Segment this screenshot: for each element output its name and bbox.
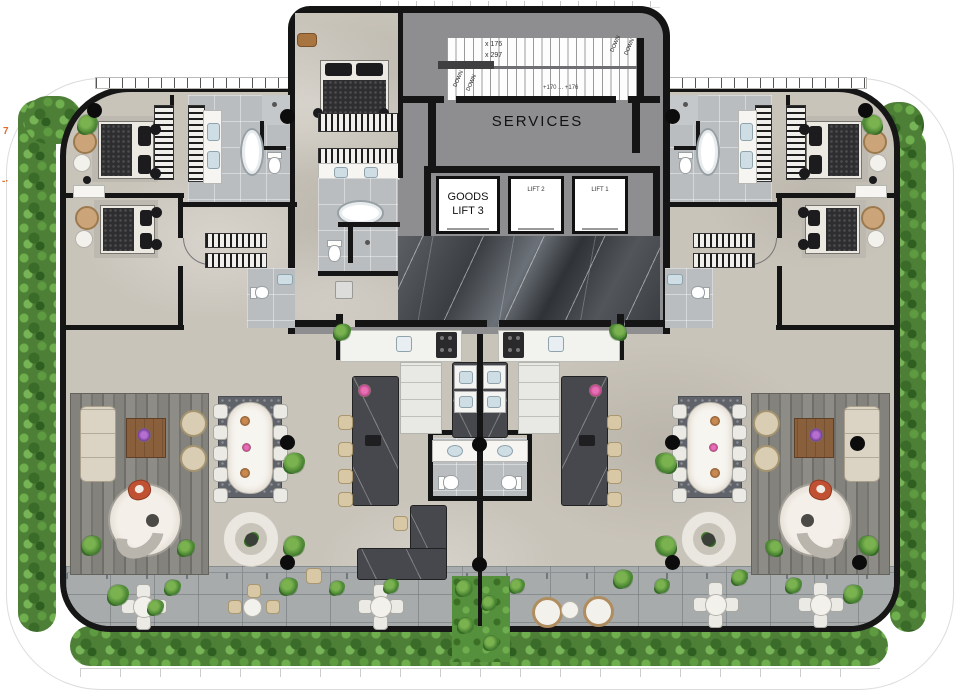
terrace-plant <box>655 579 669 593</box>
structural-column <box>665 555 680 570</box>
island-stool <box>338 442 353 457</box>
toilet <box>679 157 692 174</box>
bathtub <box>696 128 720 176</box>
table-flowers <box>242 443 251 452</box>
lounger-side-table <box>561 601 579 619</box>
structural-column <box>850 436 865 451</box>
bedside-table <box>798 239 809 250</box>
outdoor-bar-counter <box>357 548 447 580</box>
table-flowers <box>240 468 250 478</box>
dining-chair <box>732 425 747 440</box>
toilet <box>443 475 459 490</box>
terrace-plant <box>384 579 398 593</box>
island-stool <box>607 442 622 457</box>
terrace-plant <box>148 600 163 615</box>
terrace-plant <box>108 585 128 605</box>
terrace-seating-set <box>798 582 842 626</box>
party-wall <box>477 334 483 570</box>
kitchen-range <box>503 332 524 358</box>
desk-chair <box>869 176 877 184</box>
side-table <box>73 154 91 172</box>
shower-head <box>272 102 277 107</box>
floor-plan: x 176 x 297 +170 ... +176 DOWN DOWN DOWN… <box>0 0 960 696</box>
tall-cabinets <box>518 362 560 434</box>
powder-vanity <box>482 440 528 462</box>
dining-chair <box>672 488 687 503</box>
outdoor-bar-counter <box>410 505 447 553</box>
apartment-unit-right <box>478 88 898 628</box>
kitchen-island <box>561 376 608 506</box>
kitchen-sink <box>548 336 564 352</box>
terrace-plant <box>510 579 524 593</box>
table-flowers <box>240 416 250 426</box>
terrace-plant <box>280 578 297 595</box>
island-stool <box>338 469 353 484</box>
dining-chair <box>213 446 228 461</box>
terrace-plant <box>614 570 632 588</box>
dimension-line <box>80 668 880 677</box>
entry-bench <box>297 33 317 47</box>
wet-kitchen-cabinets <box>452 362 479 438</box>
side-table <box>869 154 887 172</box>
structural-column <box>280 555 295 570</box>
sofa <box>80 406 116 482</box>
party-wall-terrace <box>478 570 482 626</box>
toilet <box>268 157 281 174</box>
bedside-table <box>151 207 162 218</box>
walk-in-closet <box>205 253 267 268</box>
structural-column <box>472 437 487 452</box>
island-flowers <box>358 384 371 397</box>
structural-column <box>858 103 873 118</box>
margin-note: 7 <box>3 126 9 137</box>
potted-plant <box>178 540 194 556</box>
potted-plant <box>656 453 676 473</box>
bistro-chair <box>266 600 280 614</box>
bistro-chair <box>247 584 261 598</box>
table-flowers <box>710 416 720 426</box>
island-stool <box>607 469 622 484</box>
terrace-plant <box>786 578 801 593</box>
dining-chair <box>273 488 288 503</box>
structural-column <box>280 109 295 124</box>
potted-plant <box>284 536 304 556</box>
kitchen-range <box>436 332 457 358</box>
kitchen-island <box>352 376 399 506</box>
bedside-table <box>799 124 810 135</box>
double-vanity <box>203 110 222 184</box>
bedroom-armchair <box>861 206 885 230</box>
potted-plant <box>284 453 304 473</box>
terrace-plant <box>165 580 180 595</box>
coffee-table-flowers <box>137 428 151 442</box>
dining-chair <box>273 404 288 419</box>
bedroom-armchair <box>75 206 99 230</box>
bed <box>805 205 860 254</box>
lounge-armchair <box>180 410 207 437</box>
bed <box>806 121 862 179</box>
walk-in-closet <box>205 233 267 248</box>
dining-chair <box>213 404 228 419</box>
terrace-plant <box>330 581 344 595</box>
garden-strip-plant <box>482 596 496 610</box>
shower-head <box>683 102 688 107</box>
dining-chair <box>213 425 228 440</box>
bedside-table <box>798 207 809 218</box>
basin <box>667 274 683 285</box>
side-table <box>867 230 885 248</box>
double-vanity <box>738 110 757 184</box>
kitchen-sink <box>396 336 412 352</box>
bedside-table <box>150 124 161 135</box>
tall-cabinets <box>400 362 442 434</box>
center-planter <box>245 533 258 546</box>
dining-chair <box>732 488 747 503</box>
bed <box>100 205 155 254</box>
lounge-armchair <box>753 445 780 472</box>
desk <box>73 185 105 198</box>
structural-column <box>87 103 102 118</box>
desk <box>855 185 887 198</box>
bistro-chair <box>228 600 242 614</box>
island-stool <box>338 492 353 507</box>
round-lounger <box>532 597 563 628</box>
dining-chair <box>672 404 687 419</box>
wet-kitchen-cabinets <box>481 362 508 438</box>
bedside-table <box>150 168 161 179</box>
structural-column <box>280 435 295 450</box>
basin <box>277 274 293 285</box>
center-planter <box>702 533 715 546</box>
margin-note: -· <box>2 176 9 187</box>
structural-column <box>665 435 680 450</box>
potted-plant <box>859 536 878 555</box>
structural-column <box>665 109 680 124</box>
dining-chair <box>732 404 747 419</box>
structural-column <box>852 555 867 570</box>
table-flowers <box>710 468 720 478</box>
bedside-table <box>151 239 162 250</box>
desk-chair <box>83 176 91 184</box>
garden-strip-plant <box>456 580 472 596</box>
bed <box>98 121 154 179</box>
potted-plant <box>610 324 626 340</box>
hedge-left <box>18 100 56 632</box>
potted-plant <box>766 540 782 556</box>
dining-chair <box>213 488 228 503</box>
walk-in-closet <box>693 233 755 248</box>
island-flowers <box>589 384 602 397</box>
lounge-armchair <box>753 410 780 437</box>
structural-column <box>472 557 487 572</box>
coffee-table-flowers <box>809 428 823 442</box>
bistro-table <box>243 598 262 617</box>
dining-chair <box>732 467 747 482</box>
toilet <box>501 475 517 490</box>
stair-note: x 176 <box>485 41 502 48</box>
toilet <box>255 286 269 299</box>
terrace-plant <box>844 585 862 603</box>
bar-stool <box>393 516 408 531</box>
bedside-table <box>799 168 810 179</box>
walk-in-closet <box>693 253 755 268</box>
terrace-seating-set <box>693 582 737 626</box>
terrace-plant <box>732 570 747 585</box>
garden-strip-plant <box>458 618 473 633</box>
potted-plant <box>82 536 101 555</box>
round-lounger <box>583 596 614 627</box>
potted-plant <box>656 536 676 556</box>
toilet <box>691 286 705 299</box>
dining-chair <box>672 467 687 482</box>
lounge-armchair <box>180 445 207 472</box>
potted-plant <box>334 324 350 340</box>
dining-chair <box>732 446 747 461</box>
garden-strip-plant <box>484 636 498 650</box>
side-table <box>75 230 93 248</box>
island-stool <box>607 492 622 507</box>
bar-stool <box>306 568 322 584</box>
bathtub <box>240 128 264 176</box>
dining-chair <box>213 467 228 482</box>
wardrobe <box>755 105 772 182</box>
stair-note: x 297 <box>485 52 502 59</box>
island-stool <box>607 415 622 430</box>
table-flowers <box>709 443 718 452</box>
stair-half-wall <box>438 61 494 69</box>
island-stool <box>338 415 353 430</box>
